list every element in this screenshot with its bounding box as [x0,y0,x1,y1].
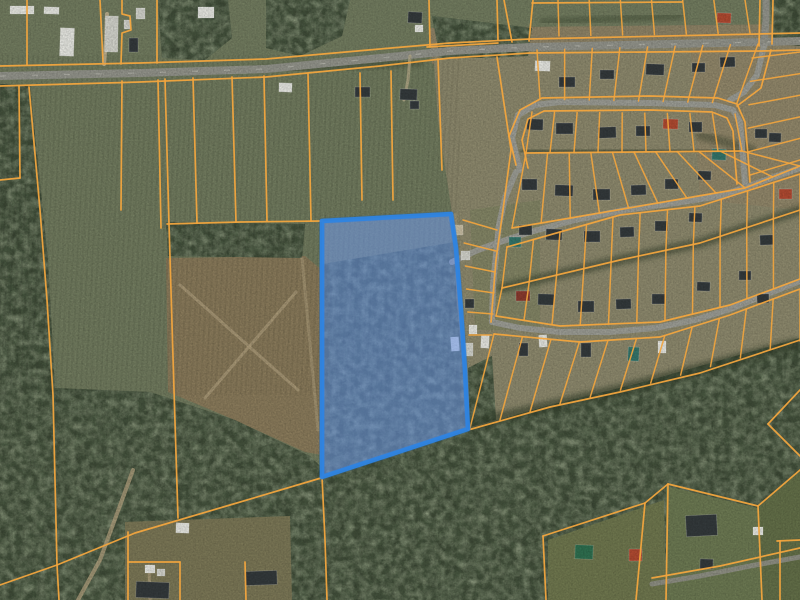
parcel-boundary-line [19,86,20,178]
satellite-map[interactable] [0,0,800,600]
parcel-boundary-line [121,81,122,210]
lot-line [665,250,666,321]
parcel-boundary-line [429,0,430,47]
lot-line [558,0,559,36]
parcel-boundary-line [772,0,773,44]
parcel-boundary-line [759,0,760,46]
parcel-boundary-line [532,2,682,3]
parcel-boundary-line [245,562,246,600]
highlighted-parcel[interactable] [322,214,468,477]
lot-line [692,244,693,314]
parcel-boundary-line [497,0,498,40]
map-viewport[interactable] [0,0,800,600]
lot-line [747,191,748,228]
